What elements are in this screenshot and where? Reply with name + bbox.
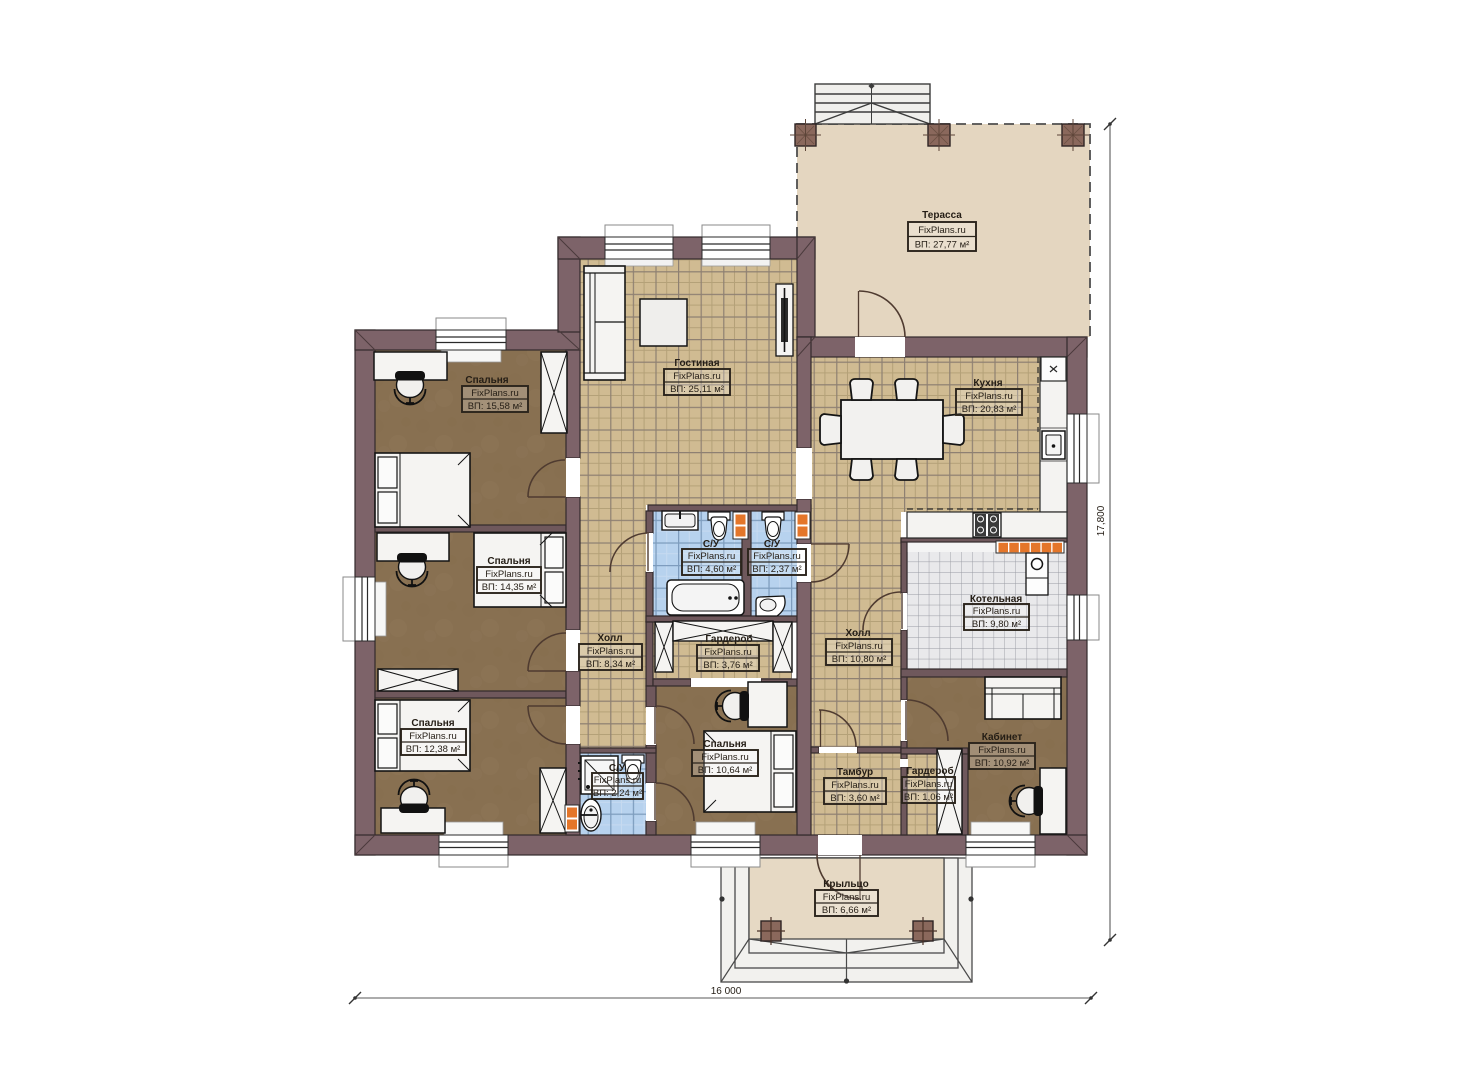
svg-text:FixPlans.ru: FixPlans.ru (823, 892, 871, 903)
svg-text:Спальня: Спальня (487, 556, 530, 567)
svg-text:ВП: 10,92 м²: ВП: 10,92 м² (975, 758, 1030, 769)
svg-text:FixPlans.ru: FixPlans.ru (918, 225, 966, 236)
svg-text:ВП: 3,60 м²: ВП: 3,60 м² (830, 793, 879, 804)
svg-text:Тамбур: Тамбур (837, 766, 873, 778)
svg-text:ВП: 25,11 м²: ВП: 25,11 м² (670, 384, 724, 395)
svg-text:ВП: 1,06 м²: ВП: 1,06 м² (904, 792, 953, 803)
svg-text:FixPlans.ru: FixPlans.ru (485, 569, 533, 580)
svg-text:Гардероб: Гардероб (906, 765, 953, 777)
svg-text:ВП: 15,58 м²: ВП: 15,58 м² (468, 401, 523, 412)
svg-text:FixPlans.ru: FixPlans.ru (688, 551, 736, 562)
svg-text:FixPlans.ru: FixPlans.ru (973, 606, 1021, 617)
svg-text:ВП: 2,24 м²: ВП: 2,24 м² (593, 788, 642, 799)
svg-text:FixPlans.ru: FixPlans.ru (831, 780, 879, 791)
svg-text:ВП: 6,66 м²: ВП: 6,66 м² (822, 905, 871, 916)
svg-text:FixPlans.ru: FixPlans.ru (704, 647, 752, 658)
svg-text:FixPlans.ru: FixPlans.ru (965, 391, 1013, 402)
svg-text:ВП: 9,80 м²: ВП: 9,80 м² (972, 619, 1021, 630)
svg-text:ВП: 14,35 м²: ВП: 14,35 м² (482, 582, 537, 593)
svg-text:ВП: 20,83 м²: ВП: 20,83 м² (962, 404, 1017, 415)
svg-text:16 000: 16 000 (711, 986, 742, 997)
svg-text:17,800: 17,800 (1096, 505, 1107, 536)
svg-text:FixPlans.ru: FixPlans.ru (978, 745, 1026, 756)
svg-text:ВП: 12,38 м²: ВП: 12,38 м² (406, 744, 461, 755)
svg-text:ВП: 3,76 м²: ВП: 3,76 м² (703, 660, 752, 671)
svg-text:Гостиная: Гостиная (674, 358, 719, 369)
svg-text:ВП: 8,34 м²: ВП: 8,34 м² (586, 659, 635, 670)
svg-text:ВП: 10,64 м²: ВП: 10,64 м² (698, 765, 753, 776)
svg-text:Спальня: Спальня (465, 375, 508, 386)
svg-text:FixPlans.ru: FixPlans.ru (594, 775, 642, 786)
svg-text:FixPlans.ru: FixPlans.ru (587, 646, 635, 657)
svg-text:ВП: 4,60 м²: ВП: 4,60 м² (687, 564, 736, 575)
svg-text:FixPlans.ru: FixPlans.ru (409, 731, 457, 742)
svg-text:Кухня: Кухня (973, 378, 1002, 389)
svg-text:FixPlans.ru: FixPlans.ru (753, 551, 801, 562)
svg-text:FixPlans.ru: FixPlans.ru (673, 371, 721, 382)
svg-text:FixPlans.ru: FixPlans.ru (701, 752, 749, 763)
svg-text:Гардероб: Гардероб (705, 633, 752, 645)
svg-text:Холл: Холл (597, 633, 622, 644)
svg-text:Спальня: Спальня (703, 739, 746, 750)
svg-text:FixPlans.ru: FixPlans.ru (471, 388, 519, 399)
svg-text:ВП: 10,80 м²: ВП: 10,80 м² (832, 654, 887, 665)
svg-text:ВП: 2,37 м²: ВП: 2,37 м² (752, 564, 801, 575)
svg-text:Крыльцо: Крыльцо (823, 879, 869, 890)
svg-text:FixPlans.ru: FixPlans.ru (835, 641, 883, 652)
svg-text:ВП: 27,77 м²: ВП: 27,77 м² (915, 240, 970, 251)
svg-text:Терасса: Терасса (922, 210, 962, 221)
svg-text:Спальня: Спальня (411, 718, 454, 729)
svg-text:FixPlans.ru: FixPlans.ru (905, 779, 953, 790)
svg-text:Кабинет: Кабинет (982, 731, 1023, 743)
svg-text:Холл: Холл (845, 628, 870, 639)
